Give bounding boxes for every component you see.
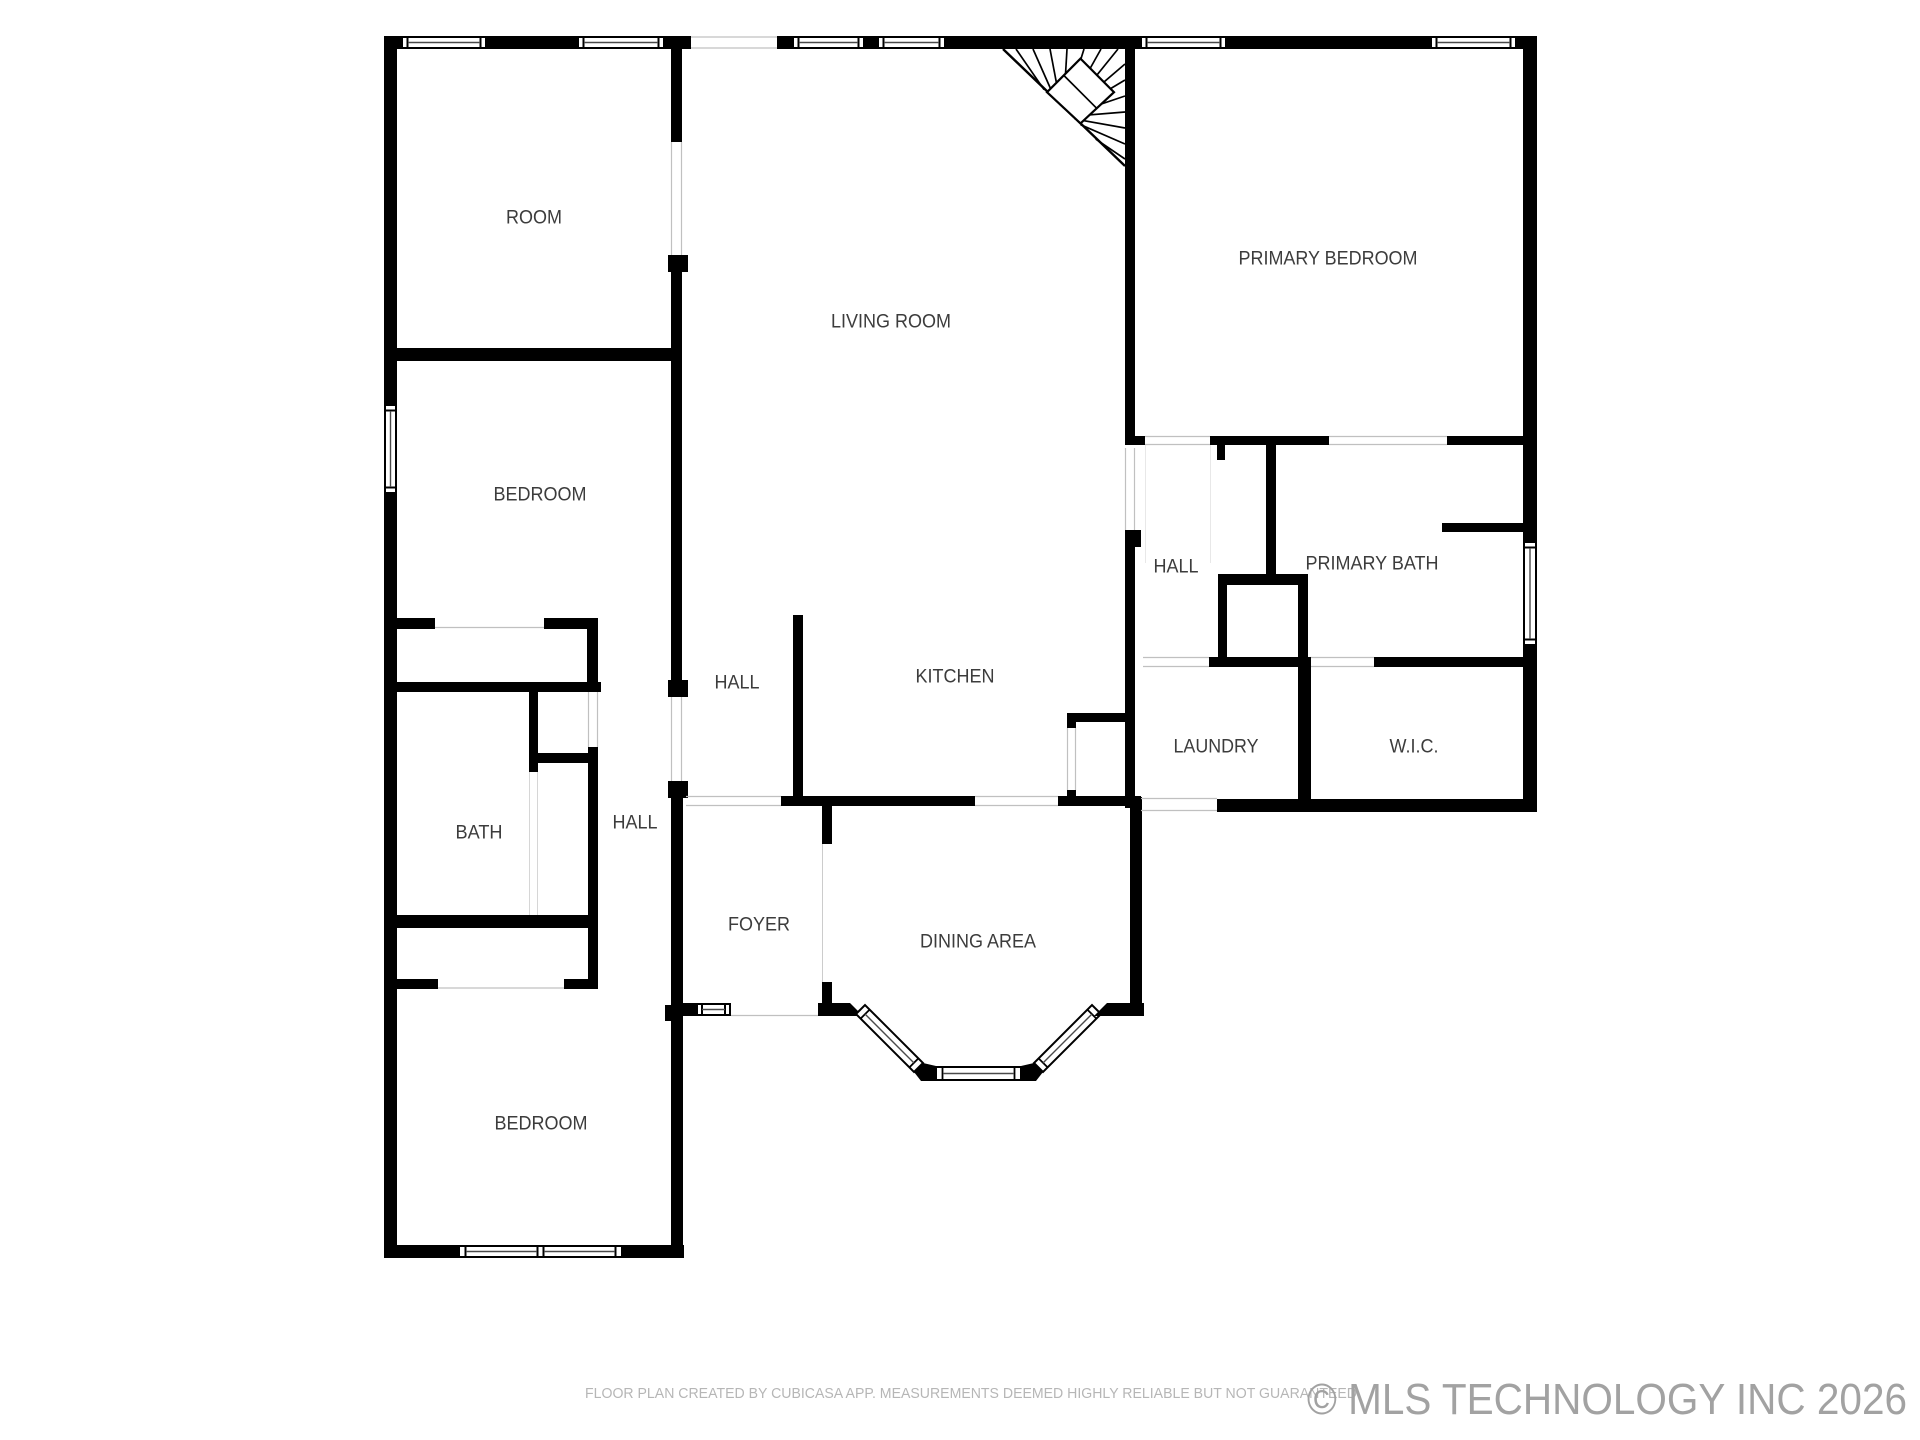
svg-text:HALL: HALL	[1154, 556, 1199, 578]
svg-text:BEDROOM: BEDROOM	[495, 1113, 588, 1135]
svg-text:PRIMARY BEDROOM: PRIMARY BEDROOM	[1239, 248, 1418, 270]
svg-text:PRIMARY BATH: PRIMARY BATH	[1306, 553, 1439, 575]
svg-text:KITCHEN: KITCHEN	[916, 666, 995, 688]
svg-text:BEDROOM: BEDROOM	[494, 484, 587, 506]
svg-text:FOYER: FOYER	[728, 914, 790, 936]
svg-text:W.I.C.: W.I.C.	[1390, 736, 1439, 758]
svg-text:DINING AREA: DINING AREA	[920, 931, 1036, 953]
svg-text:ROOM: ROOM	[506, 207, 562, 229]
svg-text:FLOOR PLAN CREATED BY CUBICASA: FLOOR PLAN CREATED BY CUBICASA APP. MEAS…	[585, 1385, 1357, 1402]
svg-text:LIVING ROOM: LIVING ROOM	[831, 311, 951, 333]
svg-text:LAUNDRY: LAUNDRY	[1174, 736, 1259, 758]
svg-text:BATH: BATH	[456, 822, 503, 844]
svg-text:HALL: HALL	[613, 812, 658, 834]
svg-text:© MLS TECHNOLOGY INC 2026: © MLS TECHNOLOGY INC 2026	[1307, 1375, 1907, 1424]
svg-text:HALL: HALL	[715, 672, 760, 694]
